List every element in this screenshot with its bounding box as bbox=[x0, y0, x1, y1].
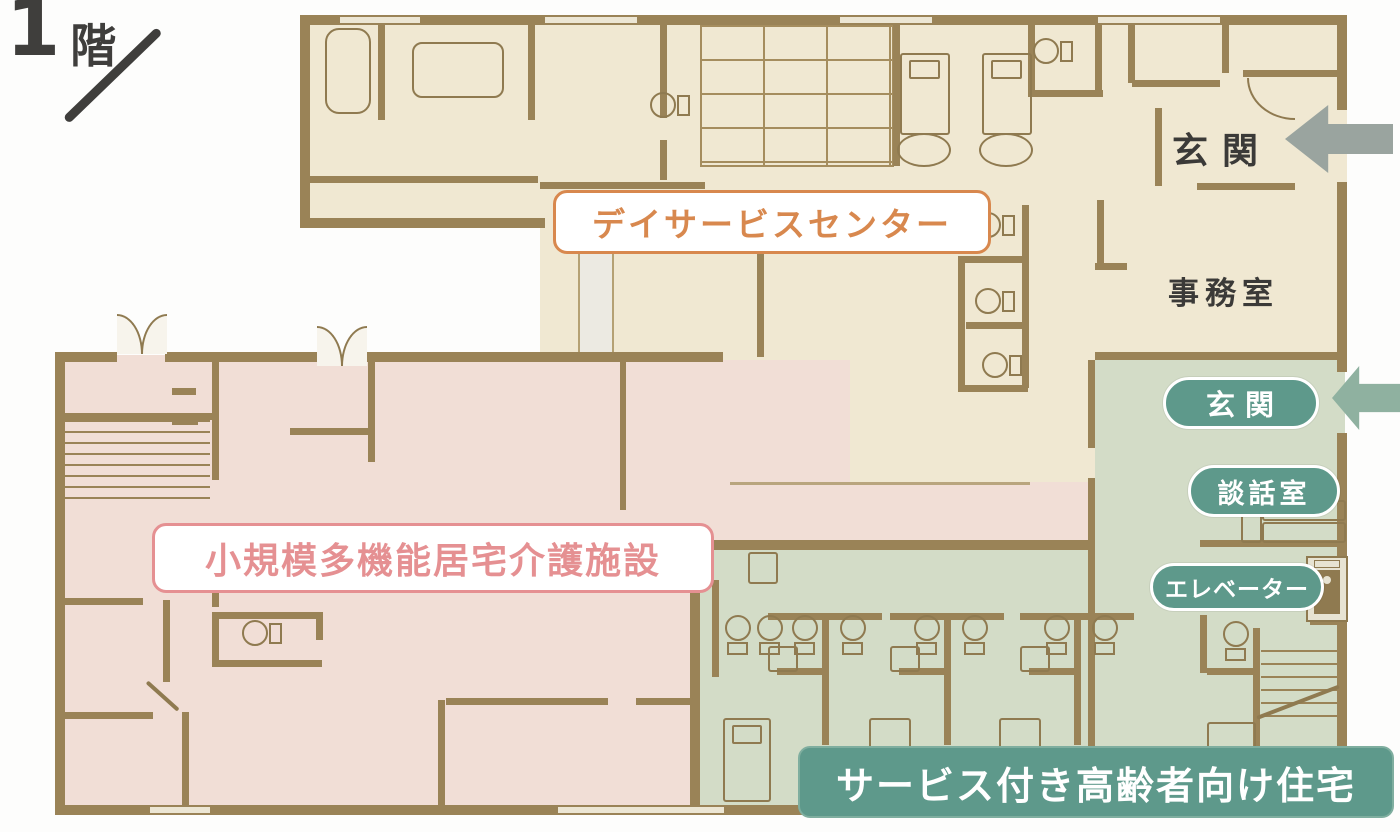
door-swing-icon bbox=[117, 314, 143, 354]
wall bbox=[290, 428, 375, 435]
wall bbox=[545, 352, 723, 362]
wall bbox=[1222, 18, 1229, 73]
wall bbox=[438, 700, 445, 807]
wall bbox=[446, 698, 608, 705]
wall bbox=[368, 362, 375, 462]
wall bbox=[1132, 80, 1220, 87]
floor-title: 1 階 bbox=[6, 0, 116, 76]
label-entrance-main: 玄関 bbox=[1172, 122, 1272, 174]
floor-plan-page: 1 階 デイサービスセンター 小規模多機能居宅介護施設 サービス付き高齢者向け住… bbox=[0, 0, 1400, 832]
wall bbox=[636, 698, 692, 705]
toilet-icon bbox=[792, 615, 818, 655]
wall bbox=[966, 322, 1024, 329]
door-swing-icon bbox=[341, 326, 367, 366]
wall bbox=[944, 613, 951, 745]
sofa-icon bbox=[1262, 522, 1346, 543]
zone-small-care-band bbox=[720, 482, 1088, 542]
floor-suffix: 階 bbox=[70, 10, 116, 76]
wall bbox=[1028, 90, 1103, 97]
label-senior-housing: サービス付き高齢者向け住宅 bbox=[798, 746, 1394, 818]
zone-small-care-mid bbox=[720, 360, 850, 484]
wall bbox=[1197, 183, 1295, 190]
wall bbox=[1022, 205, 1029, 388]
wall bbox=[365, 352, 545, 362]
toilet-icon bbox=[914, 615, 940, 655]
wall bbox=[1207, 668, 1255, 675]
wall bbox=[1095, 263, 1127, 270]
wall bbox=[182, 712, 189, 807]
window-slit bbox=[340, 17, 420, 23]
wall bbox=[712, 580, 719, 677]
wall bbox=[316, 612, 323, 640]
wall bbox=[1097, 200, 1104, 268]
pill-entrance-senior: 玄関 bbox=[1163, 377, 1319, 429]
wall bbox=[55, 352, 117, 362]
wall bbox=[1128, 18, 1135, 83]
wall bbox=[958, 385, 1028, 392]
wall bbox=[1074, 613, 1081, 745]
wall bbox=[1088, 360, 1095, 448]
wall bbox=[1095, 352, 1340, 360]
wall bbox=[1337, 182, 1347, 372]
window-slit bbox=[545, 17, 637, 23]
sink-icon bbox=[748, 552, 778, 584]
bathtub-icon bbox=[325, 28, 371, 114]
pill-lounge: 談話室 bbox=[1188, 465, 1340, 517]
toilet-icon bbox=[1044, 615, 1070, 655]
wall bbox=[163, 600, 170, 682]
floor-number: 1 bbox=[6, 0, 60, 76]
wall bbox=[660, 140, 667, 180]
label-office: 事務室 bbox=[1168, 268, 1279, 313]
label-day-service-center: デイサービスセンター bbox=[553, 190, 991, 254]
wall bbox=[378, 18, 385, 120]
wall bbox=[212, 618, 219, 666]
toilet-icon bbox=[975, 288, 1015, 314]
wall bbox=[300, 218, 545, 228]
wall bbox=[172, 388, 196, 395]
toilet-icon bbox=[1223, 621, 1249, 661]
toilet-icon bbox=[1092, 615, 1118, 655]
pill-elevator: エレベーター bbox=[1150, 563, 1324, 611]
wall bbox=[540, 182, 705, 189]
door-swing-icon bbox=[141, 314, 167, 354]
toilet-icon bbox=[242, 620, 282, 646]
zone-day-service-main bbox=[850, 360, 1097, 484]
window-slit bbox=[558, 807, 724, 813]
wall bbox=[212, 612, 322, 619]
toilet-icon bbox=[982, 352, 1022, 378]
wall bbox=[212, 660, 322, 667]
bed-icon bbox=[982, 53, 1032, 135]
stairs bbox=[62, 420, 210, 506]
door-swing-icon bbox=[317, 326, 343, 366]
table-icon bbox=[979, 133, 1033, 167]
wall bbox=[165, 352, 317, 362]
wall bbox=[60, 712, 153, 719]
table-icon bbox=[897, 133, 951, 167]
wall bbox=[822, 613, 829, 745]
bed-icon bbox=[723, 718, 771, 802]
wall bbox=[212, 362, 219, 480]
wall bbox=[1095, 18, 1102, 96]
wall bbox=[1337, 15, 1347, 110]
wall bbox=[1243, 70, 1338, 77]
bathtub-icon bbox=[412, 42, 504, 98]
wall bbox=[690, 540, 1090, 550]
window-slit bbox=[840, 17, 932, 23]
toilet-icon bbox=[962, 615, 988, 655]
toilet-icon bbox=[840, 615, 866, 655]
toilet-icon bbox=[757, 615, 783, 655]
wall bbox=[300, 15, 310, 228]
wall bbox=[55, 598, 143, 605]
bed-icon bbox=[900, 53, 950, 135]
window-slit bbox=[1098, 17, 1220, 23]
toilet-icon bbox=[650, 92, 690, 118]
window-slit bbox=[150, 807, 210, 813]
tatami-grid bbox=[700, 25, 894, 167]
wall bbox=[1200, 615, 1207, 673]
toilet-icon bbox=[725, 615, 751, 655]
toilet-icon bbox=[1033, 38, 1073, 64]
wall bbox=[528, 18, 535, 120]
wall bbox=[958, 260, 965, 388]
wall bbox=[620, 360, 626, 510]
wall bbox=[310, 176, 538, 183]
label-small-care-facility: 小規模多機能居宅介護施設 bbox=[152, 523, 714, 593]
wall bbox=[958, 256, 1028, 263]
floor-divider-line bbox=[730, 482, 1030, 485]
wall bbox=[1155, 108, 1162, 186]
